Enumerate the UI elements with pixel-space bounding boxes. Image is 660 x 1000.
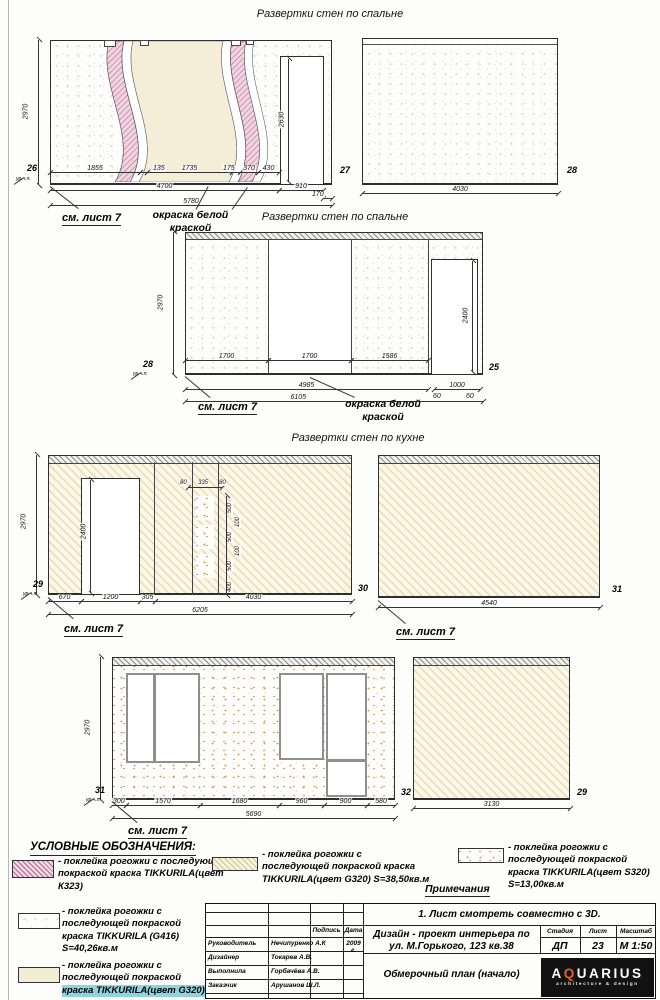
wall-niche bbox=[196, 525, 214, 549]
wall-notch bbox=[246, 40, 254, 45]
dim-label: 2400 bbox=[81, 514, 88, 550]
dimension-line bbox=[100, 657, 101, 800]
dimension-line: 5690 bbox=[112, 818, 395, 819]
dim-label: 4540 bbox=[480, 600, 498, 607]
person-name: Горбачёва А.В. bbox=[271, 969, 320, 976]
titleblock-note: 1. Лист смотреть совместно с 3D. bbox=[363, 909, 656, 921]
dim-label: 1000 bbox=[448, 382, 466, 389]
titleblock-line bbox=[205, 993, 363, 994]
wall-mark: 27 bbox=[340, 166, 350, 175]
dim-label: 4985 bbox=[298, 382, 316, 389]
dimension-line: 3130 bbox=[413, 808, 570, 809]
document-title: Обмерочный план (начало) bbox=[368, 969, 535, 981]
wall-niche bbox=[196, 554, 214, 578]
window-mullion bbox=[153, 675, 156, 761]
see-sheet-ref: см. лист 7 bbox=[198, 401, 257, 415]
dimension-line bbox=[188, 487, 222, 488]
window bbox=[126, 673, 200, 763]
dim-label: 430 bbox=[262, 165, 276, 172]
dim-label: 2400 bbox=[463, 298, 470, 334]
dim-label: 6205 bbox=[191, 607, 209, 614]
dim-label: 1680 bbox=[231, 798, 249, 805]
stage-header: Стадия bbox=[540, 929, 580, 936]
dim-label: 80 bbox=[219, 480, 226, 486]
legend-item-text-highlighted: краска TIKKURILA(цвет G320) bbox=[62, 985, 205, 997]
person-name: Токарев А.В. bbox=[271, 955, 312, 962]
dim-label: 135 bbox=[152, 165, 166, 172]
dimension-line: 4985 bbox=[185, 389, 428, 390]
heading-bedroom-elevations-1: Развертки стен по спальне bbox=[230, 8, 430, 20]
dim-label: 900 bbox=[339, 798, 353, 805]
dim-label: 5690 bbox=[245, 811, 263, 818]
dim-label: 2970 bbox=[158, 285, 165, 321]
wall-notch bbox=[231, 40, 241, 46]
wall-notch bbox=[104, 40, 116, 47]
panel-divider bbox=[428, 239, 429, 373]
dimension-line: 4030 bbox=[155, 601, 352, 602]
titleblock-line bbox=[205, 912, 363, 913]
panel-divider bbox=[154, 462, 155, 595]
legend-swatch-speckle bbox=[18, 913, 60, 929]
see-sheet-ref: см. лист 7 bbox=[128, 825, 187, 839]
dim-label: 2970 bbox=[21, 504, 28, 540]
dimension-line: 960 bbox=[279, 805, 324, 806]
dimension-line: 1680 bbox=[200, 805, 279, 806]
dimension-line: 370 bbox=[240, 172, 258, 173]
wall-mark: 28 bbox=[567, 166, 577, 175]
dim-label: 910 bbox=[294, 183, 308, 190]
person-role: Дизайнер bbox=[208, 955, 239, 962]
dimension-line: 4030 bbox=[362, 193, 558, 194]
dimension-line bbox=[472, 261, 473, 372]
heading-kitchen-elevations: Развертки стен по кухне bbox=[258, 432, 458, 444]
person-name: Арушанов Ш.Л. bbox=[271, 983, 321, 990]
dimension-line: 1200 bbox=[81, 601, 140, 602]
door-opening-2630 bbox=[280, 56, 324, 185]
legend-swatch-pink-hatch bbox=[12, 860, 54, 878]
legend-item-text: - поклейка рогожки с последующей покраск… bbox=[58, 856, 228, 893]
dim-label: 580 bbox=[374, 798, 388, 805]
see-sheet-ref: см. лист 7 bbox=[64, 623, 123, 637]
dimension-line bbox=[90, 480, 91, 593]
titleblock-line bbox=[205, 979, 363, 980]
wall-mark: 26 bbox=[27, 164, 37, 173]
paint-note: окраска белой краской bbox=[138, 209, 243, 234]
dimension-line: 1700 bbox=[185, 360, 268, 361]
dimension-line: 6205 bbox=[48, 614, 352, 615]
titleblock-line bbox=[540, 937, 656, 938]
titleblock-line bbox=[363, 953, 656, 954]
see-sheet-ref: см. лист 7 bbox=[396, 626, 455, 640]
balcony-door bbox=[326, 673, 367, 797]
wall-mark: 29 bbox=[33, 580, 43, 589]
leader-line bbox=[378, 600, 406, 624]
legend-swatch-speckle-orange bbox=[458, 848, 504, 863]
dim-label: 2630 bbox=[279, 102, 286, 138]
titleblock-line bbox=[205, 937, 363, 938]
elevation-wall-27-28 bbox=[362, 38, 558, 185]
titleblock-line bbox=[205, 965, 363, 966]
drawing-sheet: Развертки стен по спальне Развертки стен… bbox=[0, 0, 660, 1000]
dim-label: 60 bbox=[466, 393, 474, 400]
legend-item-text: - поклейка рогожки с последующей покраск… bbox=[508, 842, 658, 891]
titleblock-line bbox=[205, 925, 656, 926]
logo-wordmark: AQUARIUS bbox=[551, 967, 643, 981]
dimension-line: 900 bbox=[324, 805, 367, 806]
ceiling-strip bbox=[363, 39, 557, 45]
wall-mark: 32 bbox=[401, 788, 411, 797]
titleblock-line bbox=[205, 951, 363, 952]
dimension-line bbox=[288, 59, 289, 182]
panel-divider bbox=[192, 462, 193, 595]
logo-q-accent: Q bbox=[564, 966, 577, 981]
ceiling-strip bbox=[379, 456, 599, 464]
aquarius-logo: AQUARIUS architecture & design bbox=[541, 958, 654, 997]
window bbox=[279, 673, 324, 760]
door-opening-2400 bbox=[431, 259, 478, 375]
titleblock-line bbox=[268, 903, 269, 999]
notes-title: Примечания bbox=[425, 883, 490, 897]
date-column-header: Дата bbox=[344, 928, 363, 935]
door-rail bbox=[328, 759, 365, 762]
wall-mark: 28 bbox=[143, 360, 153, 369]
dim-label: 1200 bbox=[102, 594, 120, 601]
sheet-number: 23 bbox=[580, 941, 616, 952]
sheet-header: Лист bbox=[580, 929, 616, 936]
dim-label: 2970 bbox=[23, 94, 30, 130]
panel-divider bbox=[351, 239, 352, 373]
dim-label: 6105 bbox=[289, 394, 307, 401]
dim-label: 3130 bbox=[483, 801, 501, 808]
dim-label: 1855 bbox=[86, 165, 104, 172]
dim-label: 2970 bbox=[85, 710, 92, 746]
dimension-line: 1570 bbox=[126, 805, 200, 806]
ceiling-strip bbox=[113, 658, 394, 666]
dimension-line: 1586 bbox=[351, 360, 428, 361]
wall-niche bbox=[196, 496, 214, 520]
dim-label: 4030 bbox=[245, 594, 263, 601]
dimension-line bbox=[36, 455, 37, 595]
sheet-frame-line bbox=[8, 0, 9, 1000]
date-value: 2009 г. bbox=[344, 941, 363, 954]
ceiling-strip bbox=[49, 456, 351, 464]
dim-label: 1570 bbox=[154, 798, 172, 805]
dim-label: 670 bbox=[58, 594, 72, 601]
legend-item-text: - поклейка рогожки с последующей покраск… bbox=[62, 960, 214, 985]
dim-label: 1700 bbox=[218, 353, 236, 360]
logo-tagline: architecture & design bbox=[556, 983, 639, 988]
dimension-line: 1735 bbox=[147, 172, 232, 173]
person-role: Заказчик bbox=[208, 983, 237, 990]
person-role: Выполнила bbox=[208, 969, 246, 976]
paint-note: окраска белой краской bbox=[328, 398, 438, 423]
leader-line bbox=[310, 377, 355, 398]
dim-label: 335 bbox=[198, 480, 208, 486]
scale-value: М 1:50 bbox=[616, 941, 656, 952]
dimension-line: 1855 bbox=[50, 172, 140, 173]
dim-label: 170 bbox=[311, 191, 325, 198]
ceiling-strip bbox=[414, 658, 569, 666]
legend-swatch-beige bbox=[18, 967, 60, 983]
dim-label: 175 bbox=[222, 165, 236, 172]
project-title: Дизайн - проект интерьера по ул. М.Горьк… bbox=[368, 929, 535, 953]
wall-mark: 25 bbox=[489, 363, 499, 372]
dim-label: 305 bbox=[141, 594, 155, 601]
dimension-line bbox=[173, 232, 174, 375]
dim-label: 4030 bbox=[451, 186, 469, 193]
dim-label: 1735 bbox=[181, 165, 199, 172]
dimension-line: 1700 bbox=[268, 360, 351, 361]
dimension-line bbox=[38, 40, 39, 185]
see-sheet-ref: см. лист 7 bbox=[62, 212, 121, 226]
dim-label: 400 bbox=[227, 569, 233, 605]
scale-header: Масштаб bbox=[616, 929, 656, 936]
dimension-line: 580 bbox=[367, 805, 395, 806]
dimension-line: 430 bbox=[258, 172, 279, 173]
dimension-line: 5780 bbox=[50, 205, 332, 206]
heading-bedroom-elevations-2: Развертки стен по спальне bbox=[235, 211, 435, 223]
wall-mark: 31 bbox=[95, 786, 105, 795]
elevation-wall-30-31 bbox=[378, 455, 600, 598]
dimension-line: 170 bbox=[323, 198, 332, 199]
dimension-line: 4540 bbox=[378, 607, 600, 608]
elevation-wall-32-29 bbox=[413, 657, 570, 800]
wall-mark: 29 bbox=[577, 788, 587, 797]
legend-title: УСЛОВНЫЕ ОБОЗНАЧЕНИЯ: bbox=[30, 841, 196, 856]
dim-label: 960 bbox=[295, 798, 309, 805]
dim-label: 100 bbox=[235, 533, 241, 569]
dimension-line: 1000 bbox=[434, 389, 480, 390]
panel-divider bbox=[268, 239, 269, 373]
dim-label: 80 bbox=[180, 480, 187, 486]
dim-label: 1700 bbox=[301, 353, 319, 360]
legend-item-text: - поклейка рогожки с последующей покраск… bbox=[262, 849, 430, 886]
dim-label: 370 bbox=[242, 165, 256, 172]
dim-label: 1586 bbox=[381, 353, 399, 360]
dim-label: 4700 bbox=[156, 183, 174, 190]
sign-column-header: Подпись bbox=[311, 928, 342, 935]
stage-value: ДП bbox=[540, 941, 580, 952]
legend-item-text: - поклейка рогожки с последующей покраск… bbox=[62, 906, 214, 955]
person-name: Нечипуренко А.К bbox=[271, 941, 326, 948]
legend-swatch-beige-hatch bbox=[212, 857, 258, 871]
wall-notch bbox=[140, 40, 149, 46]
person-role: Руководитель bbox=[208, 941, 256, 948]
wall-mark: 31 bbox=[612, 585, 622, 594]
ceiling-strip bbox=[186, 233, 482, 240]
wall-mark: 30 bbox=[358, 584, 368, 593]
